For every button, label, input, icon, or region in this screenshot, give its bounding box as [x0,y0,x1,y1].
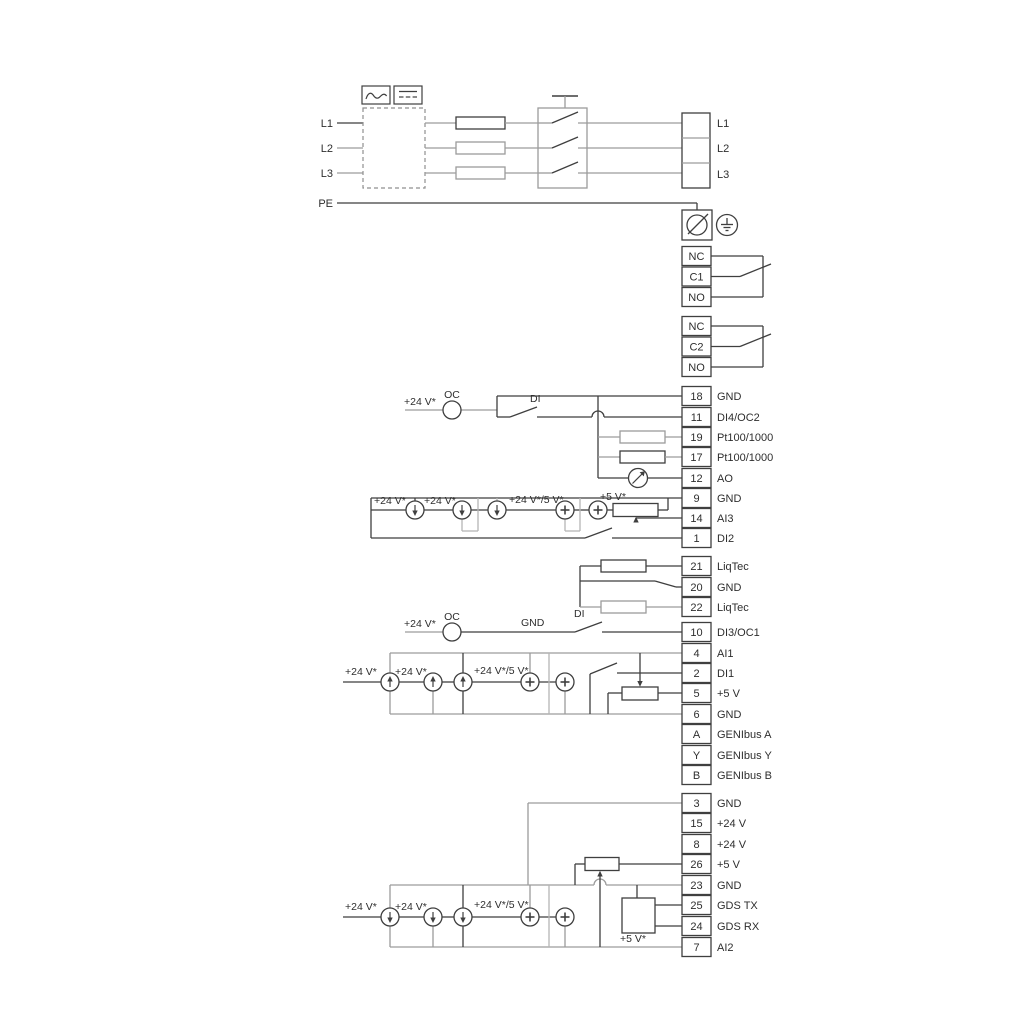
potentiometer [622,687,658,700]
terminal-number: 24 [690,921,702,933]
terminal-number: 4 [693,648,699,660]
terminal-label: GDS RX [717,921,760,933]
terminal-label: DI2 [717,533,734,545]
switch-blade [740,334,771,347]
terminal-number: 21 [690,561,702,573]
terminal-number: 11 [691,412,702,424]
relay-cell-label: C1 [689,272,703,284]
terminal-label: GND [717,798,742,810]
switch-blade [510,407,537,417]
resistor [620,431,665,443]
terminal-label: AI1 [717,648,734,660]
open-collector-icon [443,623,461,641]
switch-blade [590,663,617,674]
arrowhead [597,871,602,877]
switch-blade [585,528,612,538]
terminal-label: LiqTec [717,561,749,573]
annotation-oc: OC [444,389,460,401]
terminal-label: Pt100/1000 [717,452,773,464]
terminal-number: 12 [690,473,702,485]
terminal-label: DI4/OC2 [717,412,760,424]
relay-cell-label: NO [688,292,705,304]
terminal-label: GND [717,709,742,721]
terminal-number: 7 [693,942,699,954]
terminal-label: GENIbus Y [717,750,772,762]
terminal-number: 3 [693,798,699,810]
terminal-number: 9 [693,493,699,505]
fuse [456,142,505,154]
annotation-v5: +5 V* [600,491,626,503]
relay-cell-label: NO [688,362,705,374]
terminal-label: GND [717,880,742,892]
resistor [601,560,646,572]
terminal-label: +5 V [717,859,741,871]
terminal-number: 19 [690,432,702,444]
annotation-v5: +5 V* [620,933,646,945]
annotation-v24v5: +24 V*/5 V* [509,494,564,506]
annotation-oc: OC [444,611,460,623]
terminal-label: +5 V [717,688,741,700]
switch-blade [552,137,578,148]
wiring-diagram-svg: L1L2L3PEL1L2L3NCC1NONCC2NO18GND11DI4/OC2… [0,0,1024,1024]
terminal-number: 8 [693,839,699,851]
open-collector-icon [443,401,461,419]
potentiometer [613,504,658,517]
terminal-label: GND [717,582,742,594]
wiring-diagram-page: L1L2L3PEL1L2L3NCC1NONCC2NO18GND11DI4/OC2… [0,0,1024,1024]
terminal-number: 1 [693,533,699,545]
gds-module-box [622,898,655,933]
terminal-number: 10 [690,627,702,639]
annotation-v24v5: +24 V*/5 V* [474,899,529,911]
terminal-label: GENIbus A [717,729,772,741]
terminal-number: 20 [690,582,702,594]
terminal-label: GND [717,391,742,403]
resistor [601,601,646,613]
annotation-v24: +24 V* [374,495,406,507]
annotation-di: DI [574,608,585,620]
terminal-label: GENIbus B [717,770,772,782]
phase-label-right: L2 [717,143,729,155]
fuse [456,167,505,179]
terminal-number: 14 [690,513,702,525]
phase-label-right: L1 [717,118,729,130]
switch-blade [552,162,578,173]
terminal-number: B [693,770,700,782]
fuse [456,117,505,129]
terminal-label: DI3/OC1 [717,627,760,639]
terminal-label: AO [717,473,733,485]
terminal-number: Y [693,750,701,762]
dc-icon-box [394,86,422,104]
terminal-label: DI1 [717,668,734,680]
terminal-number: 6 [693,709,699,721]
switch-blade [552,112,578,123]
terminal-number: A [693,729,701,741]
terminal-label: AI3 [717,513,734,525]
mains-terminal-block [682,113,710,188]
annotation-v24v5: +24 V*/5 V* [474,665,529,677]
phase-label-left: L3 [321,168,333,180]
resistor [620,451,665,463]
terminal-label: +24 V [717,818,747,830]
annotation-di: DI [530,393,541,405]
phase-label-right: L3 [717,169,729,181]
arrowhead [637,681,642,687]
terminal-number: 5 [693,688,699,700]
terminal-label: AI2 [717,942,734,954]
emc-filter-box [363,108,425,188]
terminal-number: 2 [693,668,699,680]
terminal-number: 26 [690,859,702,871]
annotation-v24: +24 V* [345,666,377,678]
annotation-v24: +24 V* [404,396,436,408]
switch-blade [740,264,771,277]
annotation-gnd: GND [521,617,545,629]
relay-cell-label: C2 [689,342,703,354]
switch-blade [575,622,602,632]
annotation-v24: +24 V* [345,901,377,913]
terminal-label: GND [717,493,742,505]
terminal-label: LiqTec [717,602,749,614]
terminal-label: GDS TX [717,900,758,912]
terminal-number: 15 [690,818,702,830]
pe-label: PE [318,198,333,210]
terminal-label: +24 V [717,839,747,851]
terminal-number: 17 [690,452,702,464]
phase-label-left: L2 [321,143,333,155]
phase-label-left: L1 [321,118,333,130]
terminal-number: 23 [690,880,702,892]
terminal-number: 25 [690,900,702,912]
relay-cell-label: NC [689,321,705,333]
terminal-number: 22 [690,602,702,614]
annotation-v24: +24 V* [404,618,436,630]
relay-cell-label: NC [689,251,705,263]
terminal-label: Pt100/1000 [717,432,773,444]
potentiometer [585,858,619,871]
annotation-v24: +24 V* [395,666,427,678]
annotation-v24: +24 V* [424,495,456,507]
annotation-v24: +24 V* [395,901,427,913]
terminal-number: 18 [690,391,702,403]
wire [655,581,676,587]
